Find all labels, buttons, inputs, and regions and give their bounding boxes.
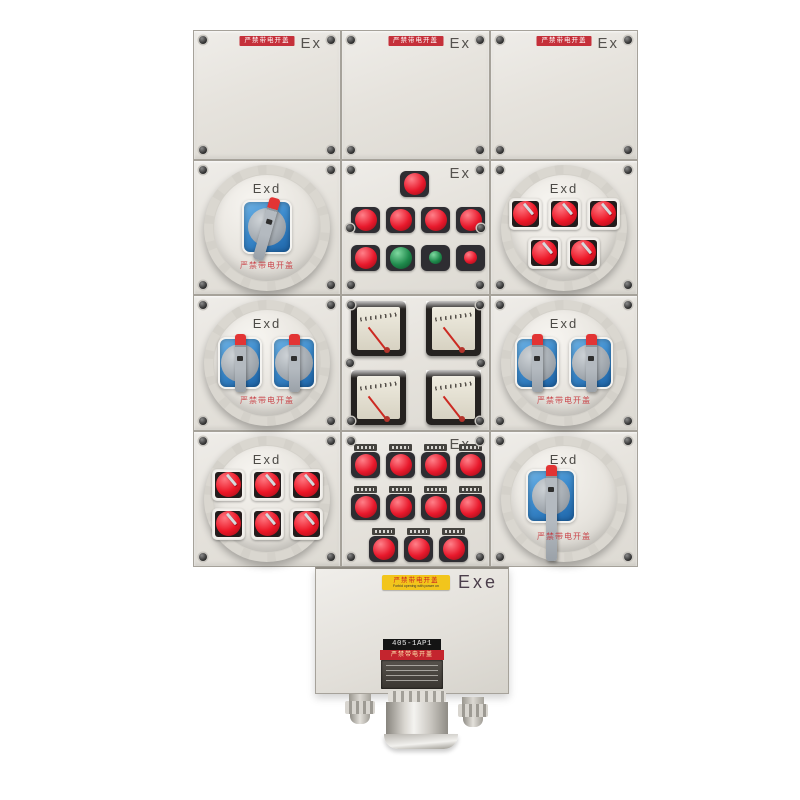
screw-icon	[476, 301, 484, 309]
screw-icon	[327, 437, 335, 445]
screw-icon	[199, 36, 207, 44]
analog-meter	[426, 370, 481, 425]
exd-marking: Exd	[510, 316, 618, 331]
indicator-lamp-red	[386, 452, 415, 478]
screw-icon	[624, 166, 632, 174]
screw-icon	[496, 437, 504, 445]
toggle-switch-red[interactable]	[251, 508, 284, 540]
junction-box: 严禁带电开盖 Forbid opening with power on Exe …	[315, 567, 509, 694]
indicator-lamp-red	[369, 536, 398, 562]
screw-icon	[327, 553, 335, 561]
toggle-switch-red[interactable]	[290, 469, 323, 501]
cable-gland-large	[384, 691, 450, 757]
module-rotary-double: Exd 严禁带电开盖	[490, 295, 638, 431]
door-warning-label: 严禁带电开盖	[240, 36, 295, 46]
toggle-switch-red[interactable]	[528, 237, 561, 269]
toggle-switch-red[interactable]	[548, 198, 581, 230]
warning-sticker-cn: 严禁带电开盖	[394, 577, 439, 584]
spec-plate	[381, 660, 443, 689]
screw-icon	[327, 281, 335, 289]
screw-icon	[347, 301, 355, 309]
toggle-switch-red[interactable]	[251, 469, 284, 501]
screw-icon	[347, 146, 355, 154]
rotary-switch-window	[526, 469, 576, 523]
door-panel-1: 严禁带电开盖 Ex	[193, 30, 341, 160]
cover-warning-text: 严禁带电开盖	[510, 395, 618, 406]
rotary-switch-window	[515, 337, 559, 389]
screw-icon	[327, 301, 335, 309]
model-tag: 405-1AP1	[383, 639, 441, 650]
screw-icon	[327, 166, 335, 174]
warning-sticker: 严禁带电开盖 Forbid opening with power on	[382, 575, 450, 590]
screw-icon	[476, 36, 484, 44]
toggle-switch-red[interactable]	[509, 198, 542, 230]
door-warning-label: 严禁带电开盖	[388, 36, 443, 46]
module-toggle-cover-6: Exd	[193, 431, 341, 567]
cable-gland-small	[457, 697, 489, 731]
screw-icon	[199, 437, 207, 445]
screw-icon	[496, 36, 504, 44]
toggle-switch-red[interactable]	[212, 508, 245, 540]
push-button-red-small[interactable]	[456, 245, 485, 271]
finned-round-cover: Exd 严禁带电开盖	[204, 300, 330, 426]
finned-round-cover: Exd 严禁带电开盖	[501, 436, 627, 562]
exd-marking: Exd	[213, 181, 321, 196]
nameplate: 405-1AP1 严禁带电开盖	[379, 639, 445, 689]
ex-marking: Ex	[449, 35, 471, 52]
indicator-lamp-red	[400, 171, 429, 197]
rotary-switch-window	[569, 337, 613, 389]
rotary-switch-handle[interactable]	[235, 334, 246, 392]
screw-icon	[199, 417, 207, 425]
toggle-switch-red[interactable]	[212, 469, 245, 501]
screw-icon	[476, 437, 484, 445]
indicator-lamp-red	[439, 536, 468, 562]
screw-icon	[624, 553, 632, 561]
indicator-lamp-red	[421, 207, 450, 233]
screw-icon	[327, 146, 335, 154]
screw-icon	[476, 281, 484, 289]
indicator-lamp-red	[404, 536, 433, 562]
screw-icon	[496, 281, 504, 289]
indicator-lamp-red	[456, 494, 485, 520]
screw-icon	[347, 281, 355, 289]
door-panel-3: 严禁带电开盖 Ex	[490, 30, 638, 160]
screw-icon	[199, 301, 207, 309]
screw-icon	[476, 146, 484, 154]
ex-marking: Ex	[300, 35, 322, 52]
screw-icon	[347, 417, 355, 425]
module-lamp-button-panel: Ex	[341, 160, 490, 295]
exd-marking: Exd	[510, 181, 618, 196]
screw-icon	[624, 301, 632, 309]
module-meter-panel: Ex	[341, 295, 490, 431]
screw-icon	[496, 553, 504, 561]
door-warning-label: 严禁带电开盖	[537, 36, 592, 46]
push-button-green[interactable]	[386, 245, 415, 271]
toggle-switch-red[interactable]	[290, 508, 323, 540]
indicator-lamp-red	[351, 494, 380, 520]
rotary-switch-handle[interactable]	[532, 334, 543, 392]
module-rotary-single: Exd 严禁带电开盖	[193, 160, 341, 295]
ex-marking: Ex	[449, 165, 471, 182]
indicator-lamp-red	[351, 207, 380, 233]
cover-warning-text: 严禁带电开盖	[213, 260, 321, 271]
screw-icon	[199, 146, 207, 154]
indicator-lamp-red	[386, 494, 415, 520]
door-panel-2: 严禁带电开盖 Ex	[341, 30, 490, 160]
exe-marking: Exe	[458, 572, 498, 593]
rotary-switch-window	[272, 337, 316, 389]
screw-icon	[477, 224, 485, 232]
rotary-switch-handle[interactable]	[546, 465, 557, 561]
analog-meter	[351, 370, 406, 425]
cover-warning-text: 严禁带电开盖	[213, 395, 321, 406]
module-toggle-cover-5: Exd	[490, 160, 638, 295]
screw-icon	[624, 281, 632, 289]
screw-icon	[624, 36, 632, 44]
nameplate-warning: 严禁带电开盖	[380, 650, 444, 660]
screw-icon	[327, 417, 335, 425]
screw-icon	[496, 417, 504, 425]
analog-meter	[426, 301, 481, 356]
rotary-switch-window	[218, 337, 262, 389]
screw-icon	[624, 437, 632, 445]
screw-icon	[347, 166, 355, 174]
screw-icon	[347, 36, 355, 44]
screw-icon	[496, 166, 504, 174]
indicator-lamp-red	[386, 207, 415, 233]
screw-icon	[476, 553, 484, 561]
indicator-lamp-red	[421, 494, 450, 520]
push-button-green-small[interactable]	[421, 245, 450, 271]
indicator-lamp-red	[351, 452, 380, 478]
screw-icon	[624, 146, 632, 154]
screw-icon	[199, 166, 207, 174]
exd-marking: Exd	[213, 452, 321, 467]
screw-icon	[624, 417, 632, 425]
module-rotary-double: Exd 严禁带电开盖	[193, 295, 341, 431]
screw-icon	[347, 437, 355, 445]
warning-sticker-en: Forbid opening with power on	[393, 584, 439, 588]
analog-meter	[351, 301, 406, 356]
finned-round-cover: Exd	[204, 436, 330, 562]
screw-icon	[199, 553, 207, 561]
screw-icon	[496, 301, 504, 309]
push-button-red[interactable]	[351, 245, 380, 271]
indicator-lamp-red	[456, 452, 485, 478]
cover-warning-text: 严禁带电开盖	[510, 531, 618, 542]
screw-icon	[199, 281, 207, 289]
cable-gland-small	[344, 694, 376, 728]
toggle-switch-red[interactable]	[587, 198, 620, 230]
rotary-switch-window	[242, 200, 292, 254]
rotary-switch-handle[interactable]	[289, 334, 300, 392]
screw-icon	[327, 36, 335, 44]
indicator-lamp-red	[421, 452, 450, 478]
screw-icon	[346, 224, 354, 232]
screw-icon	[346, 359, 354, 367]
screw-icon	[477, 359, 485, 367]
screw-icon	[496, 146, 504, 154]
ex-marking: Ex	[597, 35, 619, 52]
rotary-switch-handle[interactable]	[586, 334, 597, 392]
exd-marking: Exd	[213, 316, 321, 331]
screw-icon	[476, 166, 484, 174]
finned-round-cover: Exd 严禁带电开盖	[204, 165, 330, 291]
screw-icon	[347, 553, 355, 561]
finned-round-cover: Exd	[501, 165, 627, 291]
product-photo: 严禁带电开盖 Ex 严禁带电开盖 Ex 严禁带电开盖 Ex Exd 严禁带电开盖	[0, 0, 800, 800]
module-lamp-panel-11: Ex	[341, 431, 490, 567]
module-rotary-single-long: Exd 严禁带电开盖	[490, 431, 638, 567]
finned-round-cover: Exd 严禁带电开盖	[501, 300, 627, 426]
screw-icon	[476, 417, 484, 425]
exd-marking: Exd	[510, 452, 618, 467]
toggle-switch-red[interactable]	[567, 237, 600, 269]
